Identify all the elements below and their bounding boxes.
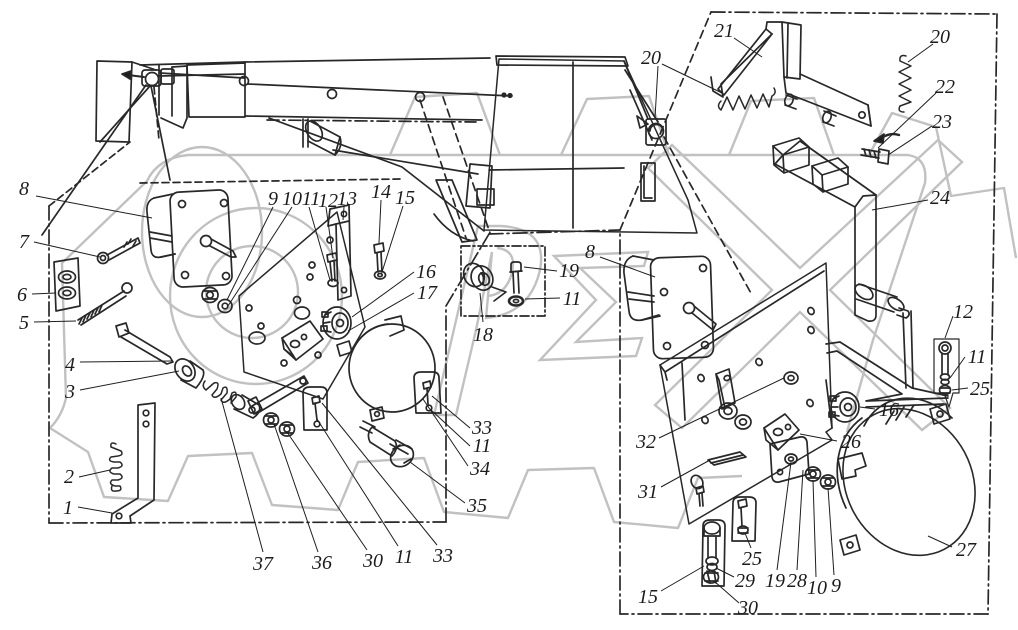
svg-text:1: 1 <box>63 497 73 519</box>
svg-text:4: 4 <box>65 354 75 376</box>
svg-text:26: 26 <box>841 431 861 453</box>
svg-text:17: 17 <box>417 282 438 304</box>
svg-text:13: 13 <box>337 188 357 210</box>
svg-text:10: 10 <box>282 188 302 210</box>
svg-text:35: 35 <box>466 495 487 517</box>
svg-text:12: 12 <box>953 301 973 323</box>
svg-text:16: 16 <box>416 261 436 283</box>
svg-text:27: 27 <box>956 539 977 561</box>
svg-text:8: 8 <box>585 241 595 263</box>
svg-text:15: 15 <box>395 187 415 209</box>
svg-text:11: 11 <box>968 346 987 368</box>
svg-text:9: 9 <box>268 188 278 210</box>
svg-text:34: 34 <box>469 458 490 480</box>
svg-text:29: 29 <box>735 570 755 592</box>
svg-text:16: 16 <box>879 399 899 421</box>
svg-text:19: 19 <box>559 260 579 282</box>
svg-text:33: 33 <box>432 545 453 567</box>
svg-text:30: 30 <box>362 550 383 572</box>
svg-text:14: 14 <box>371 181 391 203</box>
svg-text:36: 36 <box>311 552 332 574</box>
svg-text:22: 22 <box>935 76 955 98</box>
svg-text:18: 18 <box>473 324 493 346</box>
svg-text:30: 30 <box>737 597 758 619</box>
svg-text:24: 24 <box>930 187 950 209</box>
svg-text:15: 15 <box>638 586 658 608</box>
svg-text:11: 11 <box>563 288 582 310</box>
svg-text:19: 19 <box>765 570 785 592</box>
svg-text:3: 3 <box>64 381 75 403</box>
svg-text:5: 5 <box>19 312 29 334</box>
svg-text:20: 20 <box>641 47 661 69</box>
svg-text:20: 20 <box>930 26 950 48</box>
svg-text:21: 21 <box>714 20 734 42</box>
svg-text:25: 25 <box>970 378 990 400</box>
svg-text:12: 12 <box>318 190 338 212</box>
svg-text:37: 37 <box>252 553 274 575</box>
svg-text:10: 10 <box>807 577 827 599</box>
svg-text:2: 2 <box>64 466 74 488</box>
svg-text:8: 8 <box>19 178 29 200</box>
svg-text:28: 28 <box>787 570 807 592</box>
svg-text:32: 32 <box>635 431 656 453</box>
svg-text:11: 11 <box>473 435 492 457</box>
svg-text:7: 7 <box>19 231 30 253</box>
svg-text:9: 9 <box>831 575 841 597</box>
svg-text:25: 25 <box>742 548 762 570</box>
svg-text:11: 11 <box>395 546 414 568</box>
svg-text:23: 23 <box>932 111 952 133</box>
svg-text:6: 6 <box>17 284 27 306</box>
svg-text:31: 31 <box>637 481 658 503</box>
